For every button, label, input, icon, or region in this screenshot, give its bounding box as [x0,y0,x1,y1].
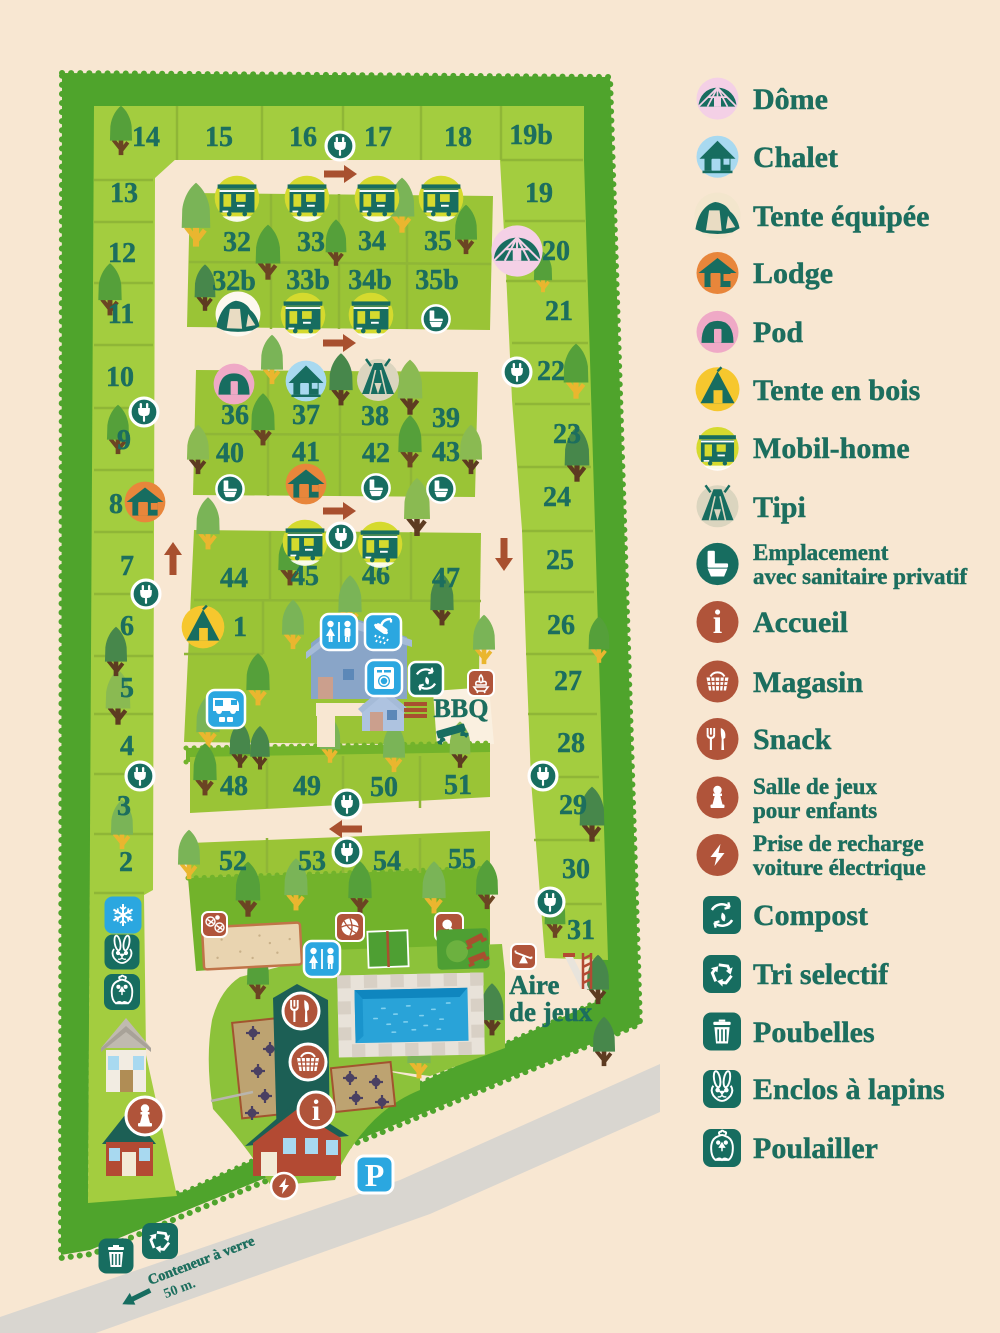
svg-text:7: 7 [120,551,134,582]
svg-text:Magasin: Magasin [753,666,863,699]
svg-text:22: 22 [537,356,565,387]
svg-text:Dôme: Dôme [753,83,828,116]
svg-text:Mobil-home: Mobil-home [753,432,910,465]
svg-text:16: 16 [289,122,317,153]
svg-text:1: 1 [233,612,247,643]
svg-text:36: 36 [221,400,249,431]
svg-text:Lodge: Lodge [753,257,833,290]
svg-text:Tente en bois: Tente en bois [753,374,920,407]
svg-text:41: 41 [292,437,320,468]
svg-text:6: 6 [120,611,134,642]
svg-text:28: 28 [557,728,585,759]
svg-text:4: 4 [120,731,134,762]
svg-text:49: 49 [293,771,321,802]
svg-text:8: 8 [109,489,123,520]
svg-text:53: 53 [298,846,326,877]
svg-text:Tri selectif: Tri selectif [753,958,889,991]
svg-text:30: 30 [562,854,590,885]
svg-text:35b: 35b [415,265,459,296]
svg-text:Pod: Pod [753,316,803,349]
svg-text:43: 43 [432,437,460,468]
svg-text:13: 13 [110,178,138,209]
svg-text:5: 5 [120,673,134,704]
svg-text:40: 40 [216,438,244,469]
svg-text:10: 10 [106,362,134,393]
svg-text:Tipi: Tipi [753,491,806,524]
svg-text:3: 3 [117,791,131,822]
svg-text:26: 26 [547,610,575,641]
svg-text:54: 54 [373,846,401,877]
svg-text:Tente équipée: Tente équipée [753,200,929,233]
svg-text:Enclos à lapins: Enclos à lapins [753,1073,945,1106]
svg-text:31: 31 [567,915,595,946]
svg-text:Salle de jeux: Salle de jeux [753,774,877,799]
svg-text:21: 21 [545,296,573,327]
svg-text:33b: 33b [286,265,330,296]
svg-text:44: 44 [220,563,248,594]
svg-text:18: 18 [444,122,472,153]
svg-text:25: 25 [546,545,574,576]
svg-text:15: 15 [205,122,233,153]
svg-text:Snack: Snack [753,723,832,756]
svg-text:Accueil: Accueil [753,606,848,639]
svg-text:de jeux: de jeux [509,997,593,1027]
svg-text:37: 37 [292,400,320,431]
svg-text:Compost: Compost [753,899,868,932]
svg-text:11: 11 [108,299,134,330]
svg-text:23: 23 [553,419,581,450]
svg-text:38: 38 [361,401,389,432]
svg-text:Aire: Aire [509,970,559,1000]
svg-text:Poubelles: Poubelles [753,1016,875,1049]
svg-text:48: 48 [220,771,248,802]
svg-text:19b: 19b [509,120,553,151]
svg-text:Poulailler: Poulailler [753,1132,878,1165]
svg-text:52: 52 [219,846,247,877]
svg-text:55: 55 [448,844,476,875]
svg-text:51: 51 [444,770,472,801]
svg-text:avec sanitaire privatif: avec sanitaire privatif [753,564,968,589]
svg-text:Prise de recharge: Prise de recharge [753,831,924,856]
svg-text:24: 24 [543,482,571,513]
svg-text:34b: 34b [348,265,392,296]
svg-text:27: 27 [554,666,582,697]
svg-text:i: i [713,604,722,641]
svg-text:Emplacement: Emplacement [753,540,889,565]
svg-text:pour enfants: pour enfants [753,798,877,823]
svg-text:9: 9 [117,425,131,456]
svg-text:19: 19 [525,178,553,209]
svg-text:47: 47 [432,563,460,594]
svg-text:42: 42 [362,438,390,469]
svg-text:39: 39 [432,403,460,434]
svg-text:50: 50 [370,772,398,803]
svg-text:P: P [365,1157,385,1193]
svg-text:Chalet: Chalet [753,141,838,174]
svg-text:20: 20 [542,236,570,267]
svg-text:32: 32 [223,227,251,258]
svg-text:17: 17 [364,122,392,153]
svg-text:i: i [312,1094,320,1127]
svg-text:14: 14 [132,122,160,153]
svg-text:34: 34 [358,226,386,257]
svg-text:29: 29 [559,790,587,821]
svg-text:33: 33 [297,227,325,258]
svg-text:12: 12 [108,238,136,269]
svg-text:BBQ: BBQ [434,694,489,723]
svg-text:2: 2 [119,847,133,878]
svg-text:voiture électrique: voiture électrique [753,855,926,880]
svg-text:35: 35 [424,226,452,257]
